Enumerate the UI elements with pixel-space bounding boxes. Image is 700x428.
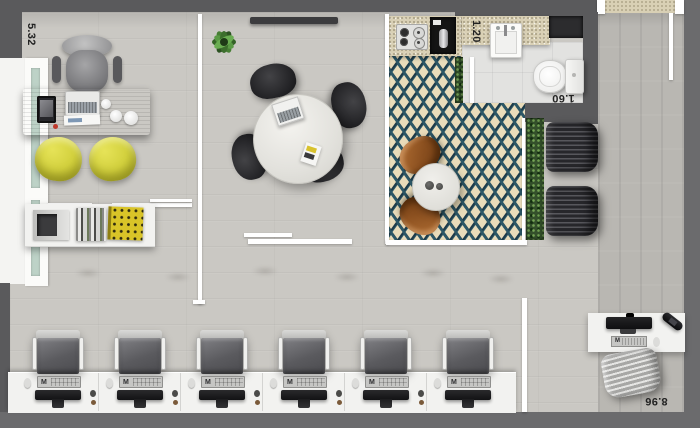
wall-top-left — [0, 0, 22, 58]
bench-seat — [546, 122, 598, 172]
monitor-stand — [298, 399, 310, 408]
desk-accessory — [53, 124, 58, 129]
keyboard: M — [283, 376, 327, 388]
wall-bottom — [0, 412, 700, 428]
papers — [64, 114, 100, 125]
workstation: M — [345, 330, 427, 412]
desk-accessory — [255, 400, 260, 405]
workstation: M — [181, 330, 263, 412]
entry-threshold — [604, 0, 676, 13]
mouse — [434, 378, 441, 388]
monitor-stand — [380, 399, 392, 408]
meeting-room-sliding-door — [244, 233, 292, 237]
entry-door-leaf — [669, 13, 673, 80]
keyboard: M — [119, 376, 163, 388]
workstation: M — [99, 330, 181, 412]
bathroom-shelf — [549, 16, 583, 38]
dimension-label: 8.96 — [645, 395, 668, 407]
cooktop — [396, 24, 428, 50]
desk-accessory — [418, 390, 424, 397]
mouse — [653, 337, 660, 347]
desk-accessory — [419, 400, 424, 405]
desk-accessory — [337, 400, 342, 405]
desk-accessory — [336, 390, 342, 397]
office-chair — [114, 330, 166, 376]
office-chair — [278, 330, 330, 376]
office-chair — [32, 330, 84, 376]
desk-accessory — [91, 400, 96, 405]
monitor-stand — [216, 399, 228, 408]
wall-mounted-shelf — [250, 17, 338, 24]
keyboard: M — [37, 376, 81, 388]
mouse — [24, 378, 31, 388]
kitchen-wall — [385, 14, 389, 244]
keyboard: M — [201, 376, 245, 388]
office-chair — [360, 330, 412, 376]
keyboard: M — [365, 376, 409, 388]
desk-accessory — [90, 390, 96, 397]
mouse — [352, 378, 359, 388]
workstation: M — [263, 330, 345, 412]
potted-plant — [202, 22, 246, 62]
office-chair — [442, 330, 494, 376]
desk-accessory — [172, 390, 178, 397]
office-floor-plan: M M M — [0, 0, 700, 428]
keyboard: M — [611, 336, 647, 347]
bench-seat — [546, 186, 598, 236]
magazine — [107, 206, 143, 240]
mouse — [270, 378, 277, 388]
exterior-left — [0, 58, 25, 284]
workstation: M — [17, 330, 99, 412]
hedge-strip — [455, 57, 463, 103]
monitor-stand — [462, 399, 474, 408]
office-chair — [196, 330, 248, 376]
mouse — [188, 378, 195, 388]
laptop — [65, 91, 100, 116]
wall-right — [684, 0, 700, 428]
wall-top — [0, 0, 700, 12]
workstation: M — [427, 330, 509, 412]
dimension-label: 1.20 — [470, 20, 482, 43]
meeting-room-sliding-door — [248, 239, 352, 244]
desk-accessory — [254, 390, 260, 397]
keyboard: M — [447, 376, 491, 388]
monitor — [606, 317, 652, 329]
monitor-stand — [52, 399, 64, 408]
bathroom-door — [470, 57, 474, 103]
toilet — [533, 59, 583, 93]
dimension-label: 1.60 — [552, 92, 575, 104]
divider-wall — [522, 298, 527, 412]
hedge — [526, 118, 544, 240]
tablet — [37, 96, 56, 123]
monitor-stand — [134, 399, 146, 408]
book-stack — [76, 208, 106, 241]
dimension-label: 5.32 — [25, 23, 37, 46]
mouse — [106, 378, 113, 388]
kitchen-sink — [430, 17, 456, 54]
coffee-machine — [33, 210, 69, 240]
desk-accessory — [173, 400, 178, 405]
bathroom-sink — [490, 23, 522, 58]
